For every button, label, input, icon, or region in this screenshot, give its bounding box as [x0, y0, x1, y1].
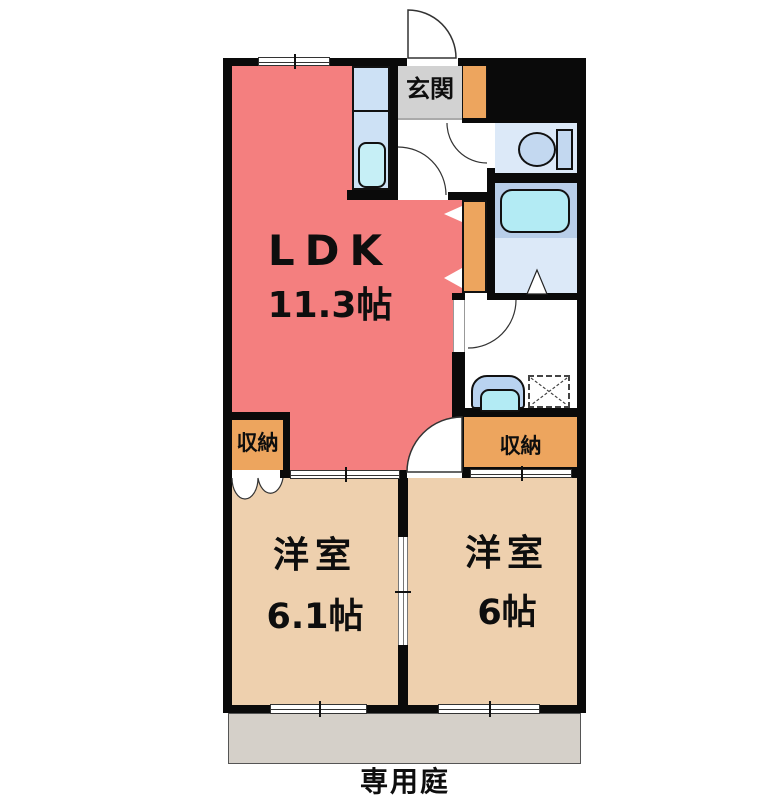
wall-closet-left-top: [232, 412, 290, 420]
closet-right-label: 収納: [464, 436, 577, 457]
wall-left: [223, 58, 232, 713]
bathroom-entry-floor: [495, 238, 577, 293]
bedroom-right-area: [408, 478, 577, 705]
wall-bedroomtop-seg2: [400, 470, 407, 478]
wall-bedroomtop-seg3: [462, 470, 470, 478]
wall-bottom-seg1: [223, 705, 270, 713]
hall-ldk-door-gap: [398, 192, 448, 200]
bedroom-left-window: [270, 704, 367, 714]
wall-bottom-seg3: [540, 705, 586, 713]
kitchen-sink-icon: [358, 142, 386, 188]
hallway-floor: [398, 120, 488, 192]
kitchen-counter-divider: [354, 110, 388, 112]
washroom-door-gap: [453, 300, 465, 352]
washbasin-icon: [471, 375, 525, 409]
bedroom-right-door-gap: [407, 470, 462, 478]
wall-washroom-left-upper: [452, 293, 465, 300]
bedroom-right-label: 洋室: [432, 536, 582, 572]
toilet-icon: [518, 132, 556, 167]
shoe-cabinet: [462, 62, 487, 120]
bedroom-left-size: 6.1帖: [232, 600, 398, 635]
bedroom-left-area: [232, 478, 398, 705]
toilet-tank-icon: [556, 129, 573, 170]
toilet-door-gap: [487, 123, 495, 168]
closet-left-door-gap: [232, 470, 280, 478]
ldk-size-label: 11.3帖: [232, 288, 428, 324]
floor-plan: LDK 11.3帖 玄関 収納 収納 洋室 6.1帖 洋室 6帖 専用庭: [0, 0, 779, 800]
wall-kitchen-right: [390, 58, 398, 200]
entrance-label: 玄関: [398, 77, 462, 101]
washing-machine-pan-icon: [528, 375, 570, 408]
wall-under-kitchen: [347, 190, 398, 200]
kitchen-counter: [352, 66, 390, 190]
bedroom-left-label: 洋室: [240, 538, 390, 574]
wall-storage-strip-right: [487, 203, 495, 300]
private-garden-area: [228, 713, 581, 764]
washbasin-bowl: [480, 389, 520, 412]
closet-left-label: 収納: [230, 433, 285, 454]
wall-bedroom-divider-bottom: [398, 645, 408, 705]
bedroom-divider-sliding-door: [398, 537, 408, 645]
wall-closet-right-left: [452, 417, 464, 467]
wall-hall-toilet-lower: [487, 168, 495, 203]
bedroom-right-size: 6帖: [432, 596, 582, 631]
wall-hall-bottom: [448, 192, 488, 200]
wall-topright-block: [487, 58, 586, 123]
wall-bath-washroom: [495, 293, 577, 300]
ldk-bedroom-left-sliding-door: [290, 470, 400, 479]
entrance-doorway-gap: [407, 58, 458, 66]
entrance-door-swing: [408, 10, 456, 58]
entrance-step-line: [398, 118, 462, 120]
wall-bedroom-divider-top: [398, 478, 408, 537]
bathtub-icon: [500, 189, 570, 233]
storage-strip: [462, 200, 487, 293]
wall-bottom-seg2: [367, 705, 438, 713]
ldk-label: LDK: [240, 230, 420, 272]
wall-bedroomtop-seg1: [280, 470, 290, 478]
wall-washroom-left-lower: [452, 352, 465, 412]
wall-bedroomtop-seg4: [572, 470, 586, 478]
wall-top-seg3: [458, 58, 487, 66]
garden-label: 専用庭: [300, 768, 510, 796]
wall-toilet-bath: [495, 173, 577, 183]
bedroom-right-window: [438, 704, 540, 714]
ldk-top-window: [258, 57, 330, 66]
closet-right-sliding-door: [470, 469, 572, 478]
